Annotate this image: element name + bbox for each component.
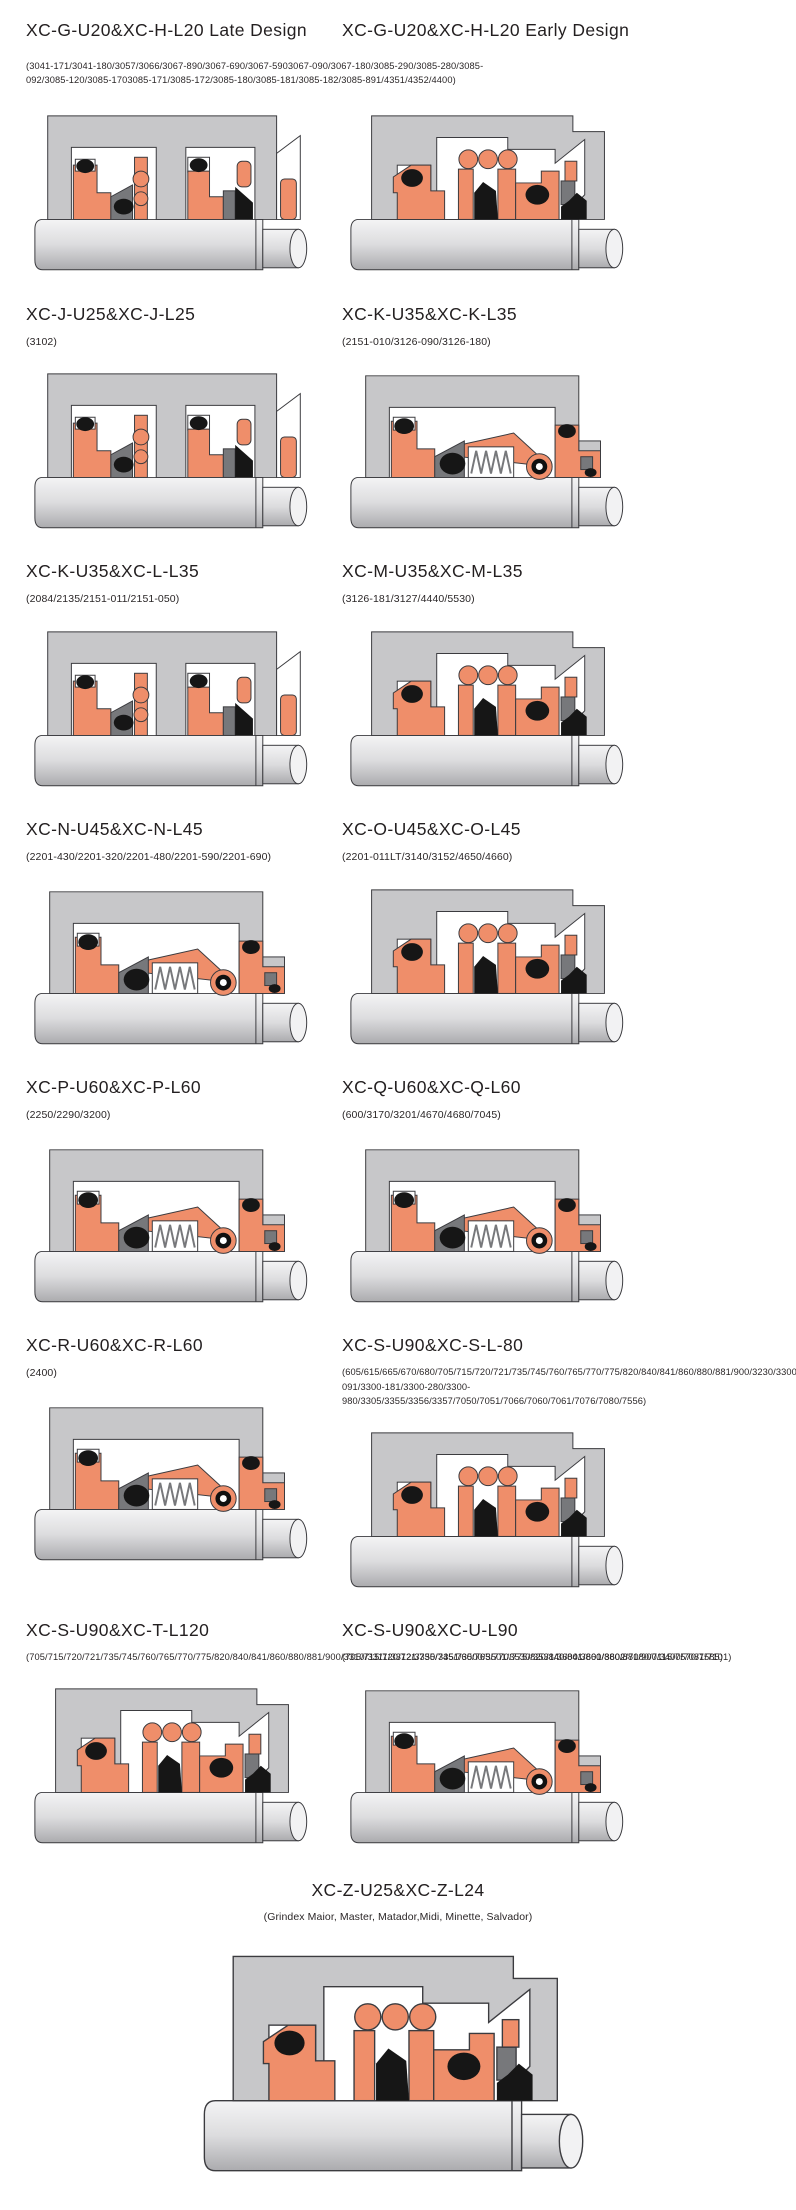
pump-shaft bbox=[351, 993, 623, 1043]
pump-shaft bbox=[351, 1536, 623, 1586]
pump-shaft bbox=[35, 1251, 307, 1301]
seal-cross-section-diagram bbox=[342, 1136, 638, 1306]
seal-components bbox=[75, 1191, 284, 1253]
pump-model-numbers: (705/715/720/721/735/745/760/765/770/775… bbox=[342, 1650, 714, 1664]
seal-cross-section-diagram bbox=[26, 104, 322, 274]
seal-cross-section-diagram bbox=[342, 878, 638, 1048]
pump-shaft bbox=[204, 2100, 582, 2170]
seal-components bbox=[75, 933, 284, 995]
seal-cross-section-diagram bbox=[26, 1677, 322, 1847]
catalog-row: XC-K-U35&XC-L-L35 (2084/2135/2151-011/21… bbox=[26, 531, 770, 789]
seal-components bbox=[75, 1449, 284, 1511]
pump-model-numbers: (705/715/720/721/735/745/760/765/770/775… bbox=[26, 1650, 332, 1664]
seal-model-title: XC-S-U90&XC-U-L90 bbox=[342, 1620, 770, 1641]
seal-entry: XC-P-U60&XC-P-L60 (2250/2290/3200) bbox=[26, 1047, 332, 1305]
seal-cross-section-diagram bbox=[342, 1677, 638, 1847]
pump-model-numbers: (3041-171/3041-180/3057/3066/3067-890/30… bbox=[26, 59, 488, 88]
seal-model-title: XC-J-U25&XC-J-L25 bbox=[26, 304, 332, 325]
pump-model-numbers: (2201-430/2201-320/2201-480/2201-590/220… bbox=[26, 849, 332, 865]
seal-model-title: XC-G-U20&XC-H-L20 Late Design bbox=[26, 20, 332, 41]
seal-cross-section-diagram bbox=[342, 104, 638, 274]
pump-model-numbers: (600/3170/3201/4670/4680/7045) bbox=[342, 1107, 770, 1123]
pump-model-numbers: (2400) bbox=[26, 1365, 332, 1381]
seal-entry: XC-K-U35&XC-K-L35 (2151-010/3126-090/312… bbox=[342, 274, 770, 532]
pump-shaft bbox=[35, 1792, 307, 1842]
seal-model-title: XC-S-U90&XC-S-L-80 bbox=[342, 1335, 770, 1356]
seal-model-title: XC-K-U35&XC-L-L35 bbox=[26, 561, 332, 582]
seal-cross-section-diagram bbox=[26, 878, 322, 1048]
pump-shaft bbox=[351, 219, 623, 269]
seal-model-title: XC-G-U20&XC-H-L20 Early Design bbox=[342, 20, 770, 41]
seal-entry: XC-Q-U60&XC-Q-L60 (600/3170/3201/4670/46… bbox=[342, 1047, 770, 1305]
pump-model-numbers: (Grindex Maior, Master, Matador,Midi, Mi… bbox=[26, 1909, 770, 1925]
seal-cross-section-diagram bbox=[26, 1394, 322, 1564]
seal-model-title: XC-R-U60&XC-R-L60 bbox=[26, 1335, 332, 1356]
seal-model-title: XC-M-U35&XC-M-L35 bbox=[342, 561, 770, 582]
seal-catalog-page: XC-G-U20&XC-H-L20 Late Design XC-G-U20&X… bbox=[0, 0, 796, 2210]
pump-shaft bbox=[351, 735, 623, 785]
seal-model-title: XC-P-U60&XC-P-L60 bbox=[26, 1077, 332, 1098]
seal-entry: XC-S-U90&XC-T-L120 (705/715/720/721/735/… bbox=[26, 1590, 332, 1846]
seal-components bbox=[391, 417, 600, 479]
seal-cross-section-diagram bbox=[26, 1136, 322, 1306]
seal-entry: XC-N-U45&XC-N-L45 (2201-430/2201-320/220… bbox=[26, 789, 332, 1047]
pump-shaft bbox=[351, 477, 623, 527]
seal-cross-section-diagram bbox=[192, 1940, 604, 2176]
seal-cross-section-diagram bbox=[26, 362, 322, 532]
pump-model-numbers: (2084/2135/2151-011/2151-050) bbox=[26, 591, 332, 607]
pump-model-numbers: (3126-181/3127/4440/5530) bbox=[342, 591, 770, 607]
seal-model-title: XC-Q-U60&XC-Q-L60 bbox=[342, 1077, 770, 1098]
seal-model-title: XC-N-U45&XC-N-L45 bbox=[26, 819, 332, 840]
seal-model-title: XC-Z-U25&XC-Z-L24 bbox=[26, 1880, 770, 1901]
seal-entry: XC-K-U35&XC-L-L35 (2084/2135/2151-011/21… bbox=[26, 531, 332, 789]
seal-entry: XC-J-U25&XC-J-L25 (3102) bbox=[26, 274, 332, 532]
pump-shaft bbox=[351, 1792, 623, 1842]
seal-cross-section-diagram bbox=[342, 620, 638, 790]
pump-shaft bbox=[35, 1509, 307, 1559]
seal-model-title: XC-S-U90&XC-T-L120 bbox=[26, 1620, 332, 1641]
catalog-row: XC-N-U45&XC-N-L45 (2201-430/2201-320/220… bbox=[26, 789, 770, 1047]
seal-cross-section-diagram bbox=[26, 620, 322, 790]
seal-components bbox=[391, 1732, 600, 1794]
pump-shaft bbox=[35, 735, 307, 785]
seal-model-title: XC-K-U35&XC-K-L35 bbox=[342, 304, 770, 325]
seal-cross-section-diagram bbox=[342, 362, 638, 532]
catalog-row: XC-G-U20&XC-H-L20 Late Design XC-G-U20&X… bbox=[26, 8, 770, 274]
seal-entry: XC-S-U90&XC-S-L-80 (605/615/665/670/680/… bbox=[342, 1305, 770, 1590]
pump-shaft bbox=[35, 477, 307, 527]
pump-model-numbers: (2250/2290/3200) bbox=[26, 1107, 332, 1123]
seal-entry: XC-R-U60&XC-R-L60 (2400) bbox=[26, 1305, 332, 1590]
seal-entry: XC-O-U45&XC-O-L45 (2201-011LT/3140/3152/… bbox=[342, 789, 770, 1047]
catalog-row: XC-Z-U25&XC-Z-L24 (Grindex Maior, Master… bbox=[26, 1880, 770, 2175]
seal-model-title: XC-O-U45&XC-O-L45 bbox=[342, 819, 770, 840]
seal-entry: XC-M-U35&XC-M-L35 (3126-181/3127/4440/55… bbox=[342, 531, 770, 789]
catalog-row: XC-R-U60&XC-R-L60 (2400) bbox=[26, 1305, 770, 1590]
seal-entry: XC-S-U90&XC-U-L90 (705/715/720/721/735/7… bbox=[342, 1590, 770, 1846]
catalog-row: XC-S-U90&XC-T-L120 (705/715/720/721/735/… bbox=[26, 1590, 770, 1846]
pump-shaft bbox=[35, 993, 307, 1043]
pump-model-numbers: (3102) bbox=[26, 334, 332, 350]
catalog-row: XC-P-U60&XC-P-L60 (2250/2290/3200) bbox=[26, 1047, 770, 1305]
pump-model-numbers: (605/615/665/670/680/705/715/720/721/735… bbox=[342, 1365, 714, 1408]
seal-components bbox=[391, 1191, 600, 1253]
catalog-row: XC-J-U25&XC-J-L25 (3102) bbox=[26, 274, 770, 532]
pump-model-numbers: (2151-010/3126-090/3126-180) bbox=[342, 334, 770, 350]
pump-shaft bbox=[351, 1251, 623, 1301]
pump-shaft bbox=[35, 219, 307, 269]
seal-cross-section-diagram bbox=[342, 1421, 638, 1591]
pump-model-numbers: (2201-011LT/3140/3152/4650/4660) bbox=[342, 849, 770, 865]
